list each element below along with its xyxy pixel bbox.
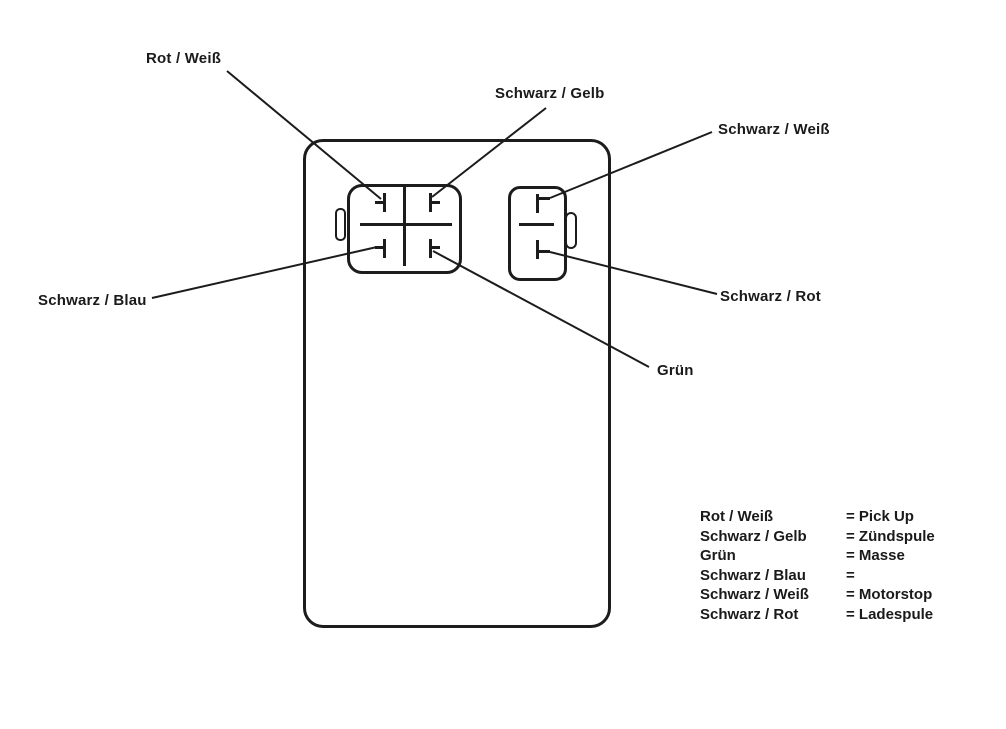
pin-schwarz-rot-tick xyxy=(539,250,550,253)
pin-rot-weiss-tick xyxy=(375,201,384,204)
connector-4pin-latch xyxy=(335,208,346,241)
legend-row-rot-weiss: Rot / Weiß = Pick Up xyxy=(700,507,935,527)
connector-4pin-divider-horizontal xyxy=(360,223,452,226)
pin-schwarz-weiss-tick xyxy=(539,197,550,200)
legend-function: = Ladespule xyxy=(846,605,933,625)
legend-row-schwarz-weiss: Schwarz / Weiß = Motorstop xyxy=(700,585,935,605)
label-schwarz-gelb: Schwarz / Gelb xyxy=(495,85,605,102)
legend-function: = Pick Up xyxy=(846,507,914,527)
pin-schwarz-blau-tick xyxy=(375,246,384,249)
connector-2pin-latch xyxy=(565,212,577,249)
legend-function: = xyxy=(846,566,855,586)
legend-function: = Masse xyxy=(846,546,905,566)
legend-wire: Schwarz / Rot xyxy=(700,605,846,625)
legend-function: = Motorstop xyxy=(846,585,932,605)
connector-4pin-divider-vertical xyxy=(403,187,406,266)
legend-wire: Grün xyxy=(700,546,846,566)
legend-row-schwarz-rot: Schwarz / Rot = Ladespule xyxy=(700,605,935,625)
label-schwarz-rot: Schwarz / Rot xyxy=(720,288,821,305)
connector-2pin-divider-horizontal xyxy=(519,223,554,226)
label-gruen: Grün xyxy=(657,362,694,379)
legend-row-gruen: Grün = Masse xyxy=(700,546,935,566)
label-rot-weiss: Rot / Weiß xyxy=(146,50,221,67)
pin-schwarz-gelb-tick xyxy=(431,201,440,204)
legend-function: = Zündspule xyxy=(846,527,935,547)
pin-gruen-tick xyxy=(431,246,440,249)
label-schwarz-weiss: Schwarz / Weiß xyxy=(718,121,830,138)
legend-row-schwarz-gelb: Schwarz / Gelb = Zündspule xyxy=(700,527,935,547)
legend: Rot / Weiß = Pick Up Schwarz / Gelb = Zü… xyxy=(700,507,935,624)
label-schwarz-blau: Schwarz / Blau xyxy=(38,292,147,309)
legend-wire: Rot / Weiß xyxy=(700,507,846,527)
legend-wire: Schwarz / Blau xyxy=(700,566,846,586)
legend-wire: Schwarz / Gelb xyxy=(700,527,846,547)
wiring-diagram-canvas: Rot / Weiß Schwarz / Gelb Schwarz / Weiß… xyxy=(0,0,1006,729)
legend-wire: Schwarz / Weiß xyxy=(700,585,846,605)
legend-row-schwarz-blau: Schwarz / Blau = xyxy=(700,566,935,586)
